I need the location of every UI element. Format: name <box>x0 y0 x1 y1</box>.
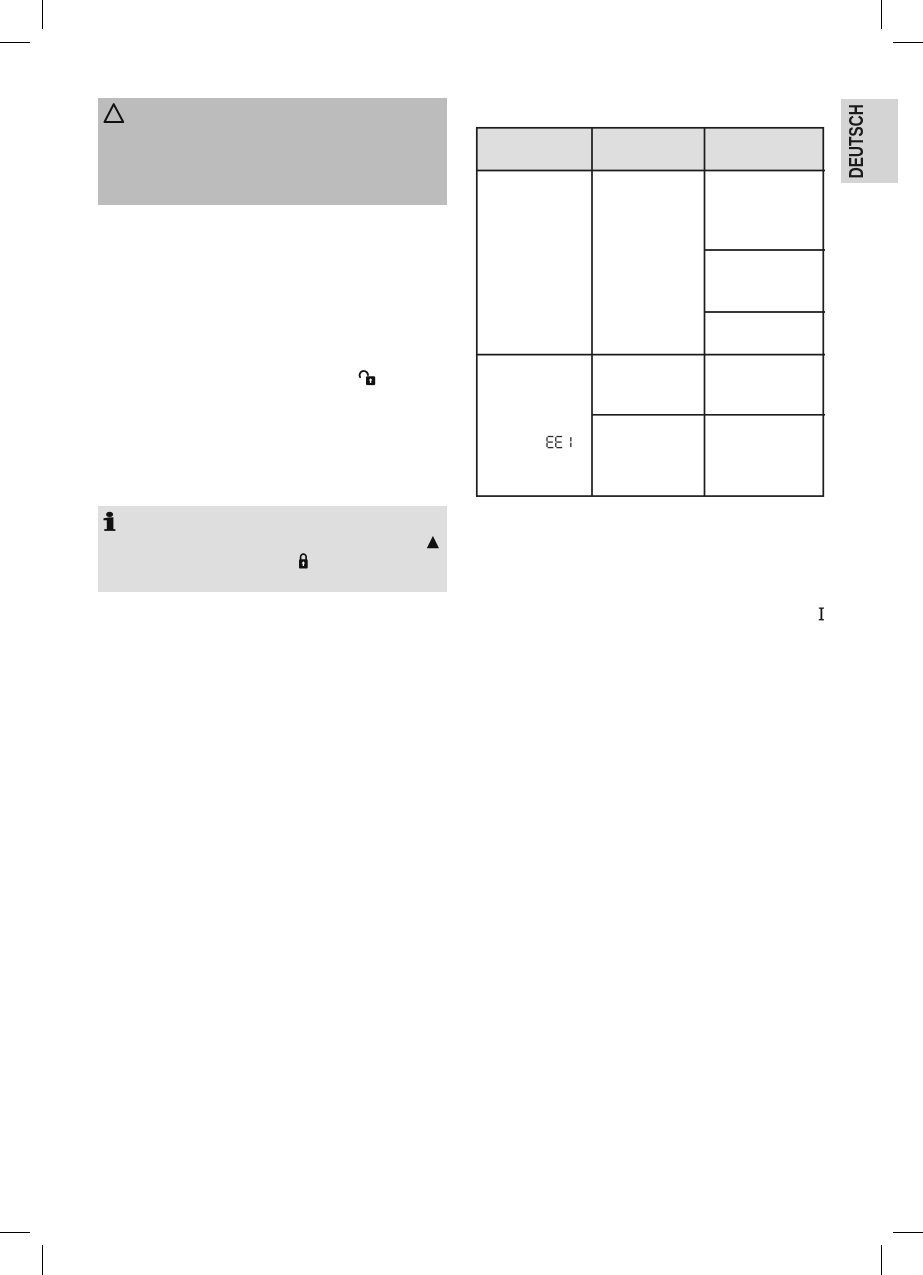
svg-text:DEUTSCH: DEUTSCH <box>846 104 868 178</box>
